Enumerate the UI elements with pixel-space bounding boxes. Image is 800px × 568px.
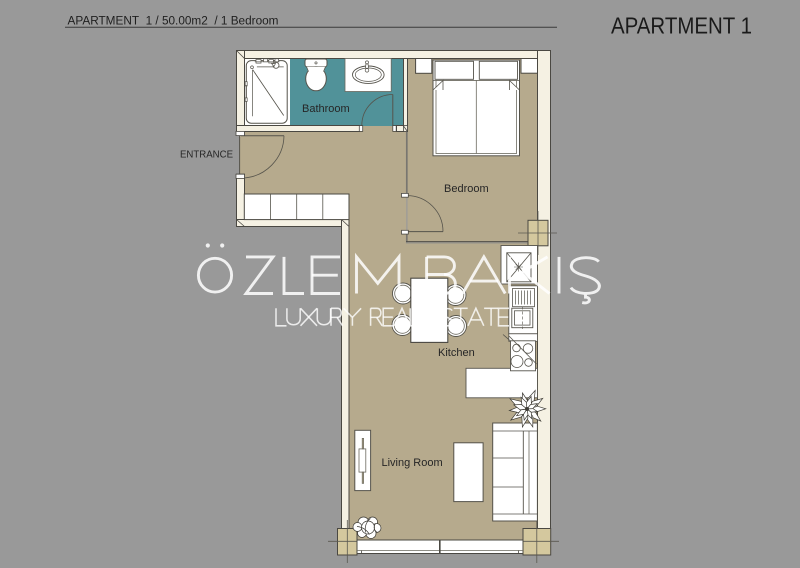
svg-text:Bathroom: Bathroom [302,103,350,115]
svg-text:Living Room: Living Room [382,457,443,469]
svg-text:Kitchen: Kitchen [438,347,475,359]
svg-text:ENTRANCE: ENTRANCE [180,148,233,160]
svg-text:Bedroom: Bedroom [444,183,489,195]
svg-text:APARTMENT 1 / 50.00m2 / 1 Be: APARTMENT 1 / 50.00m2 / 1 Bedroom [68,15,279,27]
svg-text:APARTMENT 1: APARTMENT 1 [611,13,752,39]
